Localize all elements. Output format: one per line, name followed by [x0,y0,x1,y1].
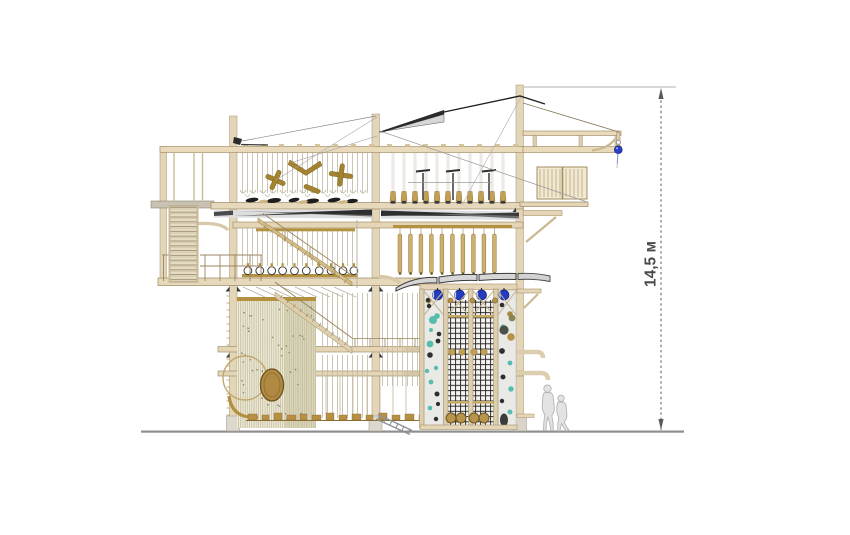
svg-text:14,5 м: 14,5 м [643,241,660,287]
